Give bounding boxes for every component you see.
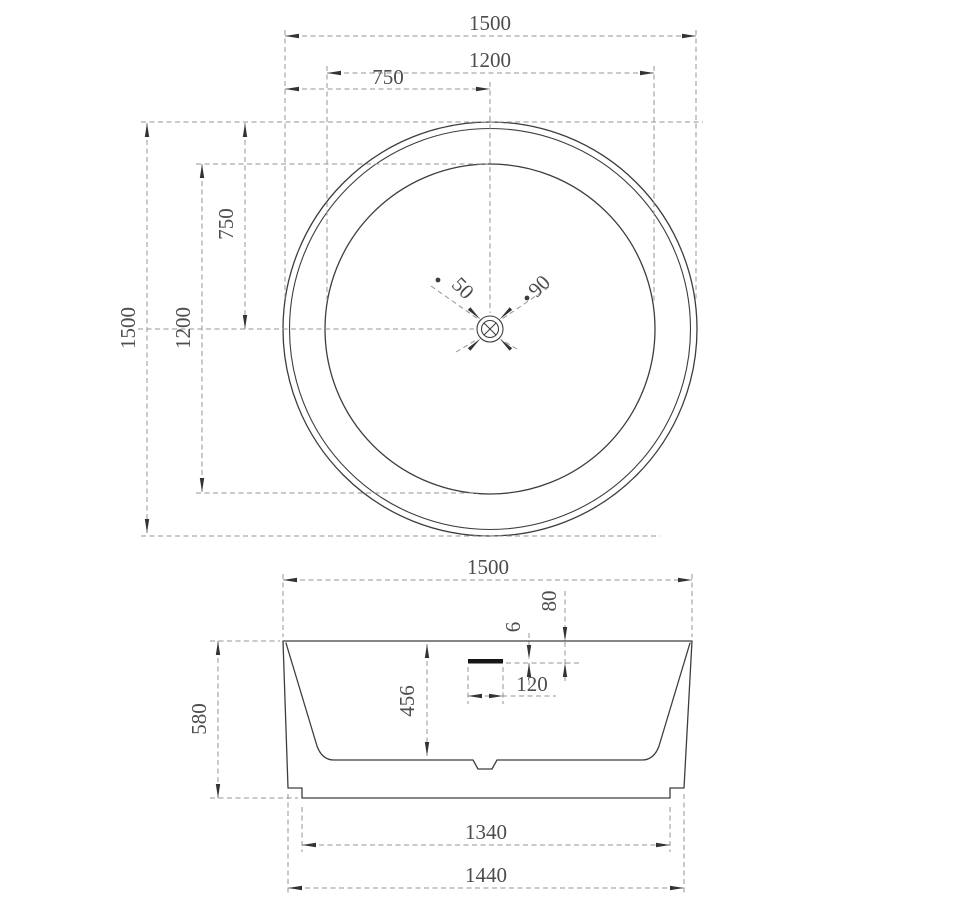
dim-label-foot-width: 1440 <box>465 863 507 887</box>
dim-top-overall-width: 1500 <box>285 11 696 38</box>
dim-overflow-offset-top: 80 <box>537 591 567 682</box>
top-view-extension-lines <box>138 30 703 536</box>
top-view: 1500 1200 750 1500 1200 <box>116 11 703 536</box>
drain-leader-lines: 50 90 <box>431 270 555 352</box>
dim-label-side-overall-width: 1500 <box>467 555 509 579</box>
dim-overflow-slot-width: 120 <box>468 672 556 698</box>
dim-inner-depth: 456 <box>395 644 429 756</box>
dim-label-top-basin-width: 1200 <box>469 48 511 72</box>
dim-label-top-center-offset-v: 750 <box>214 208 238 240</box>
dim-label-base-width: 1340 <box>465 820 507 844</box>
side-view-extension-lines <box>210 574 692 894</box>
side-view-outline <box>283 641 692 798</box>
dim-label-top-basin-height: 1200 <box>171 307 195 349</box>
side-view: 1500 80 6 120 456 <box>187 555 692 894</box>
dim-label-inner-depth: 456 <box>395 685 419 717</box>
dim-label-overflow-slot-height: 6 <box>501 622 525 633</box>
dim-side-overall-height: 580 <box>187 641 220 798</box>
drain-leader-dot <box>525 296 530 301</box>
dim-label-side-overall-height: 580 <box>187 703 211 735</box>
dim-side-overall-width: 1500 <box>283 555 692 582</box>
drain-symbol <box>468 307 512 350</box>
overflow-slot <box>468 659 503 664</box>
dim-top-basin-height: 1200 <box>171 164 204 492</box>
dim-label-top-overall-height: 1500 <box>116 307 140 349</box>
dim-label-overflow-slot-width: 120 <box>516 672 548 696</box>
dim-label-drain-dia-small: 50 <box>447 272 479 304</box>
dim-top-center-offset-v: 750 <box>214 123 247 329</box>
bathtub-technical-drawing: 1500 1200 750 1500 1200 <box>0 0 970 914</box>
dim-label-overflow-offset-top: 80 <box>537 591 561 612</box>
dim-label-top-overall-width: 1500 <box>469 11 511 35</box>
dim-base-width: 1340 <box>302 820 670 847</box>
dim-foot-width: 1440 <box>288 863 684 890</box>
dim-label-top-center-offset-h: 750 <box>372 65 404 89</box>
drain-leader-dot <box>436 278 441 283</box>
tub-elevation-outer-profile <box>283 641 692 798</box>
dim-top-overall-height: 1500 <box>116 123 149 533</box>
dim-top-center-offset-h: 750 <box>285 65 490 91</box>
